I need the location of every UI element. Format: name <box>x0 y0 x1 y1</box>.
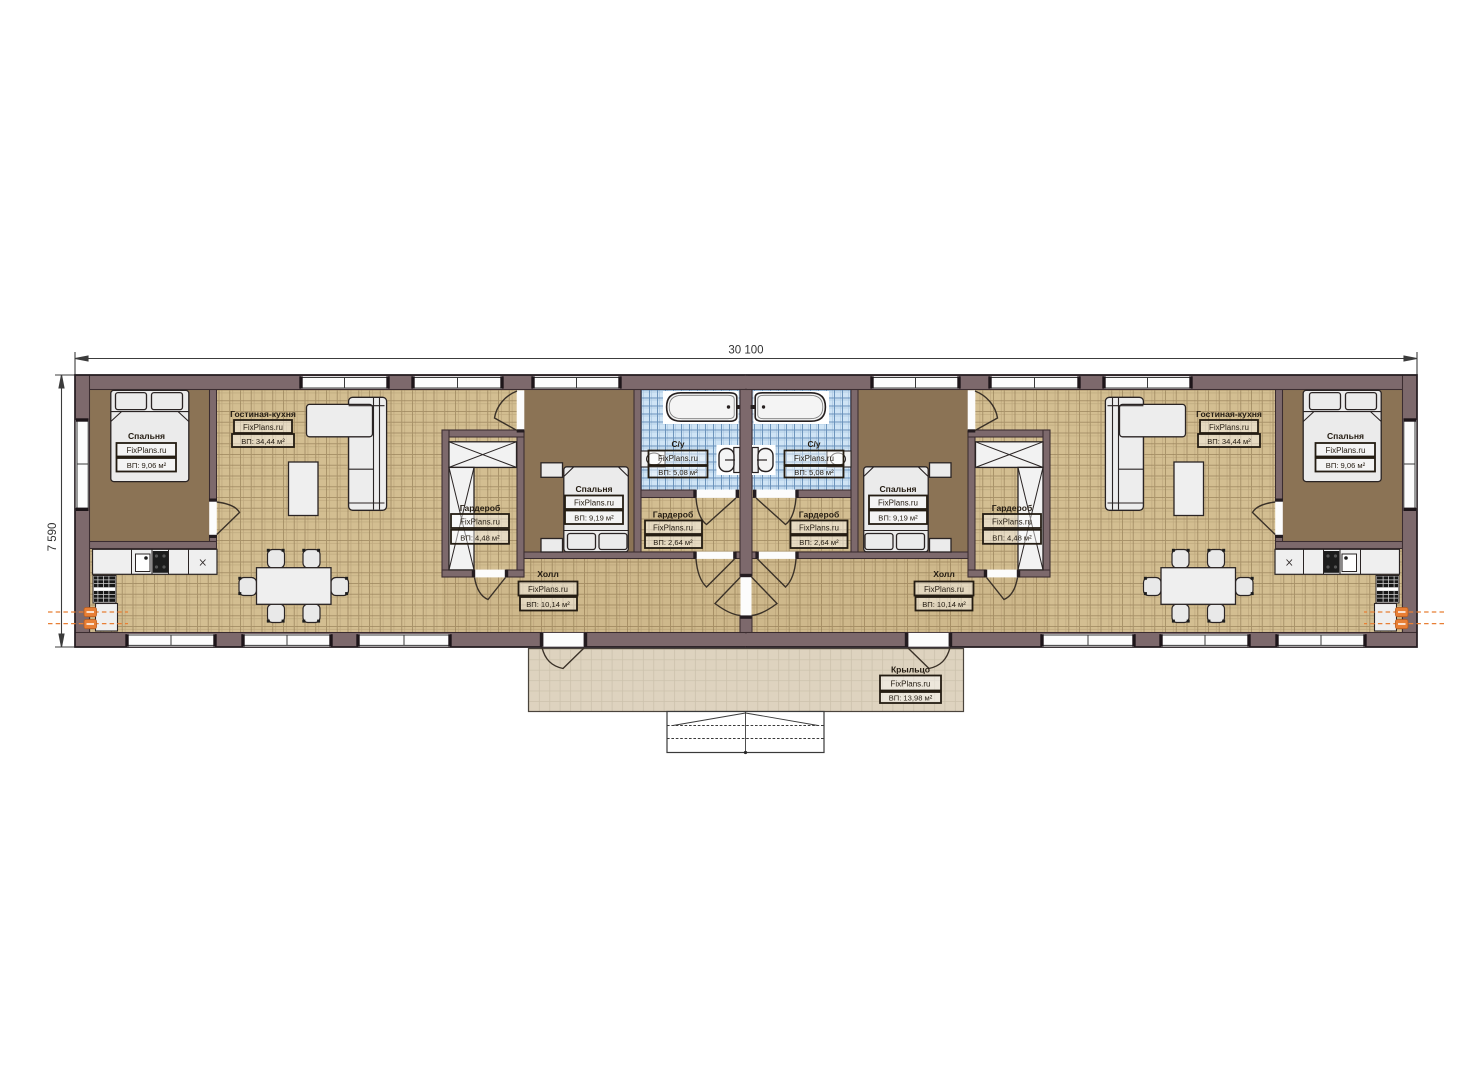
svg-text:Спальня: Спальня <box>575 484 612 494</box>
svg-text:С/у: С/у <box>807 439 820 449</box>
svg-text:ВП: 5,08 м²: ВП: 5,08 м² <box>794 468 834 477</box>
svg-text:FixPlans.ru: FixPlans.ru <box>878 499 918 508</box>
svg-text:FixPlans.ru: FixPlans.ru <box>799 524 839 533</box>
svg-text:FixPlans.ru: FixPlans.ru <box>890 680 930 689</box>
svg-text:FixPlans.ru: FixPlans.ru <box>794 454 834 463</box>
svg-text:FixPlans.ru: FixPlans.ru <box>574 499 614 508</box>
svg-text:ВП: 2,64 м²: ВП: 2,64 м² <box>653 538 693 547</box>
svg-text:FixPlans.ru: FixPlans.ru <box>992 518 1032 527</box>
svg-text:30 100: 30 100 <box>728 345 763 357</box>
svg-text:ВП: 9,19 м²: ВП: 9,19 м² <box>878 514 918 523</box>
svg-text:ВП: 13,98 м²: ВП: 13,98 м² <box>889 694 933 703</box>
svg-text:ВП: 9,19 м²: ВП: 9,19 м² <box>574 514 614 523</box>
svg-text:FixPlans.ru: FixPlans.ru <box>653 524 693 533</box>
svg-text:FixPlans.ru: FixPlans.ru <box>528 585 568 594</box>
svg-text:ВП: 9,06 м²: ВП: 9,06 м² <box>127 461 167 470</box>
svg-text:FixPlans.ru: FixPlans.ru <box>658 454 698 463</box>
svg-text:FixPlans.ru: FixPlans.ru <box>924 585 964 594</box>
svg-text:Спальня: Спальня <box>879 484 916 494</box>
svg-text:FixPlans.ru: FixPlans.ru <box>1209 423 1249 432</box>
svg-text:Гардероб: Гардероб <box>653 510 694 520</box>
svg-text:ВП: 2,64 м²: ВП: 2,64 м² <box>799 538 839 547</box>
svg-text:ВП: 10,14 м²: ВП: 10,14 м² <box>526 600 570 609</box>
svg-text:Гостиная-кухня: Гостиная-кухня <box>230 409 296 419</box>
svg-text:Холл: Холл <box>933 569 955 579</box>
svg-text:ВП: 9,06 м²: ВП: 9,06 м² <box>1326 461 1366 470</box>
svg-text:FixPlans.ru: FixPlans.ru <box>1325 446 1365 455</box>
svg-text:ВП: 34,44 м²: ВП: 34,44 м² <box>241 437 285 446</box>
svg-text:ВП: 4,48 м²: ВП: 4,48 м² <box>992 533 1032 542</box>
svg-text:Спальня: Спальня <box>128 431 165 441</box>
svg-text:FixPlans.ru: FixPlans.ru <box>126 446 166 455</box>
svg-text:FixPlans.ru: FixPlans.ru <box>460 518 500 527</box>
svg-text:ВП: 10,14 м²: ВП: 10,14 м² <box>922 600 966 609</box>
svg-text:Спальня: Спальня <box>1327 431 1364 441</box>
svg-text:Гардероб: Гардероб <box>992 503 1033 513</box>
svg-text:Гостиная-кухня: Гостиная-кухня <box>1196 409 1262 419</box>
svg-text:FixPlans.ru: FixPlans.ru <box>243 423 283 432</box>
svg-text:Холл: Холл <box>537 569 559 579</box>
svg-text:Крыльцо: Крыльцо <box>891 665 930 675</box>
svg-text:С/у: С/у <box>671 439 684 449</box>
svg-text:Гардероб: Гардероб <box>799 510 840 520</box>
svg-text:7 590: 7 590 <box>47 523 59 552</box>
svg-text:ВП: 34,44 м²: ВП: 34,44 м² <box>1207 437 1251 446</box>
svg-text:ВП: 5,08 м²: ВП: 5,08 м² <box>658 468 698 477</box>
svg-text:Гардероб: Гардероб <box>460 503 501 513</box>
svg-text:ВП: 4,48 м²: ВП: 4,48 м² <box>460 533 500 542</box>
